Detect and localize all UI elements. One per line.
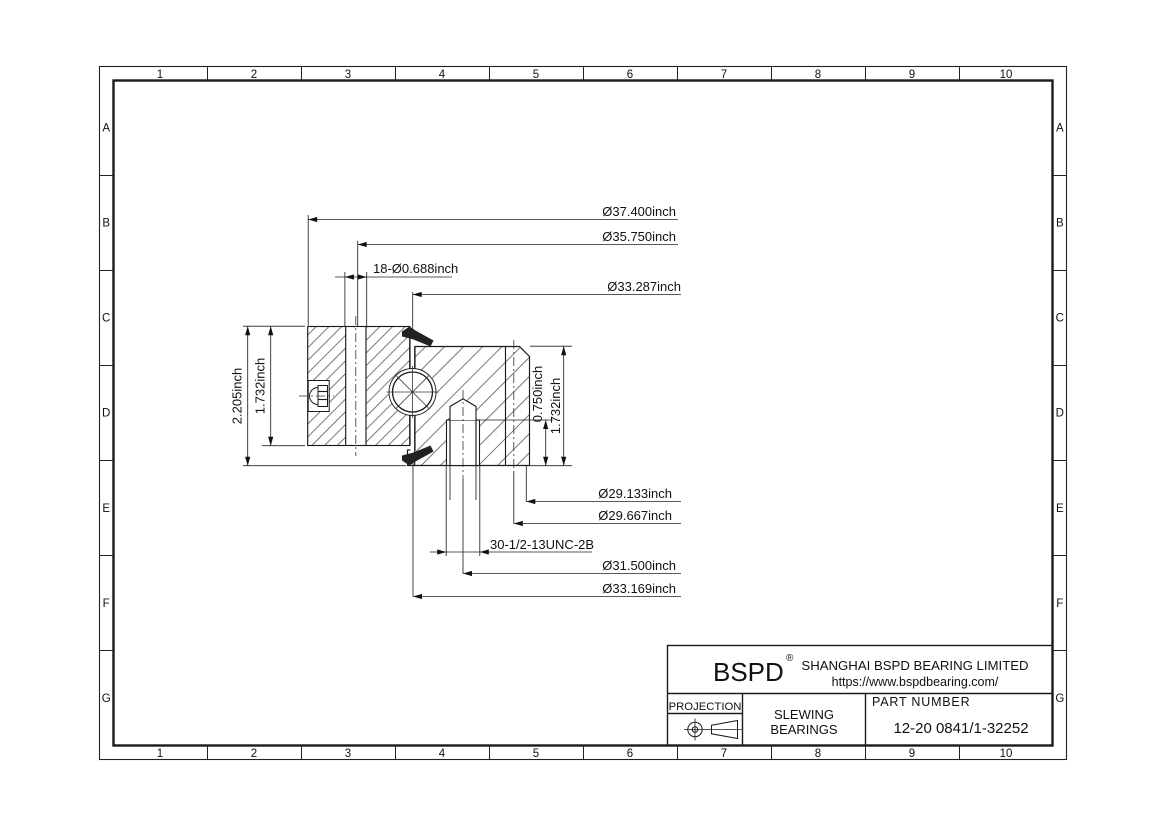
grid-label: 1 — [157, 69, 163, 81]
drawing-sheet: 1 2 3 4 5 6 7 8 9 10 1 2 3 4 5 6 7 8 9 1… — [0, 0, 1170, 827]
grid-label: F — [103, 598, 110, 610]
grid-label: 3 — [345, 748, 351, 760]
grid-label: F — [1056, 598, 1063, 610]
grid-label: G — [1055, 693, 1064, 705]
grid-label: C — [102, 313, 110, 325]
grease-fitting — [299, 381, 334, 412]
dim-outer-step-diameter: Ø35.750inch — [602, 229, 676, 244]
dim-total-height: 2.205inch — [230, 368, 245, 424]
part-number-label: PART NUMBER — [872, 695, 970, 709]
product-name-line2: BEARINGS — [770, 722, 838, 737]
grid-row-labels-right: A B C D E F G — [1055, 123, 1064, 706]
dim-outer-diameter: Ø37.400inch — [602, 204, 676, 219]
grid-label: C — [1056, 313, 1064, 325]
grid-label: D — [102, 408, 110, 420]
dim-bore-diameter: Ø29.133inch — [598, 486, 672, 501]
grid-label: A — [1056, 123, 1064, 135]
grid-column-labels-top: 1 2 3 4 5 6 7 8 9 10 — [157, 69, 1013, 81]
title-block: BSPD ® SHANGHAI BSPD BEARING LIMITED htt… — [668, 646, 1053, 746]
engineering-drawing: 1 2 3 4 5 6 7 8 9 10 1 2 3 4 5 6 7 8 9 1… — [0, 0, 1170, 827]
dim-tapped-holes: 30-1/2-13UNC-2B — [490, 537, 594, 552]
projection-label: PROJECTION — [669, 701, 742, 713]
grid-label: 1 — [157, 748, 163, 760]
dim-raceway-lower: Ø33.169inch — [602, 581, 676, 596]
part-number-value: 12-20 0841/1-32252 — [893, 720, 1028, 737]
grid-label: 7 — [721, 748, 727, 760]
grid-label: 2 — [251, 69, 257, 81]
grid-label: 10 — [1000, 748, 1013, 760]
grid-label: 5 — [533, 69, 539, 81]
company-logo: BSPD — [713, 657, 784, 687]
grid-column-labels-bottom: 1 2 3 4 5 6 7 8 9 10 — [157, 748, 1013, 760]
grid-label: 8 — [815, 748, 821, 760]
grid-label: G — [102, 693, 111, 705]
grid-row-labels-left: A B C D E F G — [102, 123, 111, 706]
grid-label: B — [102, 218, 110, 230]
dim-outer-ring-height: 1.732inch — [253, 358, 268, 414]
grid-label: B — [1056, 218, 1064, 230]
grid-label: 6 — [627, 748, 633, 760]
grid-label: E — [1056, 503, 1064, 515]
dim-thread-depth: 0.750inch — [530, 366, 545, 422]
dim-inner-ring-height: 1.732inch — [548, 378, 563, 434]
dim-raceway-upper: Ø33.287inch — [607, 279, 681, 294]
grid-label: 4 — [439, 69, 446, 81]
projection-symbol-icon — [684, 719, 742, 741]
product-name-line1: SLEWING — [774, 707, 834, 722]
company-website: https://www.bspdbearing.com/ — [832, 675, 999, 689]
grid-label: D — [1056, 408, 1064, 420]
mounting-hole — [346, 316, 366, 456]
dim-tapped-hole-circle: Ø31.500inch — [602, 558, 676, 573]
grid-label: 10 — [1000, 69, 1013, 81]
registered-trademark: ® — [786, 653, 794, 664]
grid-label: 7 — [721, 69, 727, 81]
dim-mounting-holes: 18-Ø0.688inch — [373, 261, 458, 276]
grid-label: 4 — [439, 748, 446, 760]
grid-label: 2 — [251, 748, 257, 760]
dim-inner-step-diameter: Ø29.667inch — [598, 508, 672, 523]
company-name: SHANGHAI BSPD BEARING LIMITED — [801, 658, 1028, 673]
grid-label: 3 — [345, 69, 351, 81]
grid-label: 6 — [627, 69, 633, 81]
grid-label: A — [102, 123, 110, 135]
grid-label: 5 — [533, 748, 539, 760]
grid-label: 9 — [909, 748, 915, 760]
grid-label: E — [102, 503, 110, 515]
grid-label: 8 — [815, 69, 821, 81]
sheet-frame: 1 2 3 4 5 6 7 8 9 10 1 2 3 4 5 6 7 8 9 1… — [100, 67, 1067, 761]
grid-label: 9 — [909, 69, 915, 81]
bearing-section-view — [299, 316, 553, 479]
